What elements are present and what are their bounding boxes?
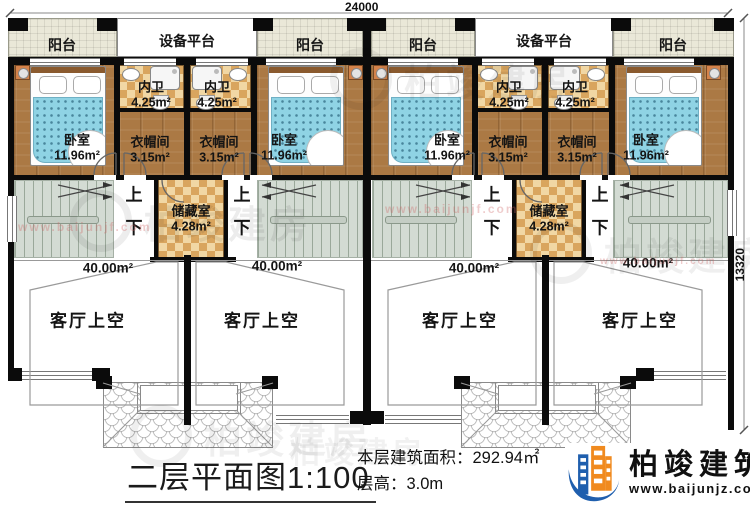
wall-post — [636, 368, 654, 381]
storage-1-label: 储藏室4.28m² — [171, 205, 211, 234]
company-logo-icon — [565, 443, 621, 503]
pillow — [73, 76, 101, 94]
wall-post — [371, 411, 384, 424]
door-opening — [608, 175, 630, 180]
pillow — [311, 76, 339, 94]
lamp — [376, 68, 387, 79]
staircase-1 — [14, 180, 114, 258]
wall — [224, 178, 228, 260]
balcony-1-label: 阳台 — [48, 35, 76, 55]
bath-window — [554, 58, 606, 66]
bottom-window — [22, 371, 92, 380]
stair-up-label: 上 — [126, 181, 143, 206]
wall-post — [253, 18, 273, 31]
headboard — [31, 67, 105, 73]
platform-1-label: 设备平台 — [159, 31, 215, 51]
wall — [154, 178, 158, 260]
pillow — [39, 76, 67, 94]
wall-post — [262, 376, 278, 389]
void-3-label: 客厅上空 — [422, 307, 498, 332]
bath-window — [124, 58, 176, 66]
floor-area-text: 本层建筑面积：292.94㎡ — [357, 446, 539, 472]
wall-post — [96, 376, 112, 389]
stair-down-label: 下 — [234, 214, 251, 239]
balcony-door-window — [266, 58, 336, 66]
void-1-label: 客厅上空 — [50, 307, 126, 332]
company-logo-text: 柏竣建筑 www.baijunjz.com — [629, 450, 750, 497]
wall-party — [184, 255, 191, 425]
wall — [184, 62, 190, 180]
bath-window — [196, 58, 248, 66]
door-opening — [452, 175, 474, 180]
void-2-label: 客厅上空 — [224, 307, 300, 332]
wall-post — [8, 18, 28, 31]
stair-handrail — [27, 216, 100, 224]
company-website: www.baijunjz.com — [629, 481, 750, 496]
dimension-height: 13320 — [733, 248, 747, 281]
pillow — [431, 76, 459, 94]
nightstand — [373, 65, 388, 80]
floor-plan-page: 阳台 设备平台 阳台 阳台 设备平台 阳台 内卫4.25m² 内卫4.25m² … — [0, 0, 750, 512]
wall — [512, 178, 516, 260]
pillow — [635, 76, 663, 94]
wall — [472, 62, 478, 180]
door-opening — [124, 175, 146, 180]
nightstand — [15, 65, 30, 80]
balcony-2-label: 阳台 — [296, 35, 324, 55]
pillow — [397, 76, 425, 94]
bedroom-4-label: 卧室11.96m² — [623, 134, 669, 163]
staircase-2 — [257, 180, 363, 258]
wall-post — [714, 18, 734, 31]
pillow — [277, 76, 305, 94]
bath-2-label: 内卫4.25m² — [197, 81, 237, 110]
bath-window — [482, 58, 534, 66]
stair-handrail — [270, 216, 347, 224]
wall-post — [350, 411, 363, 424]
headboard — [389, 67, 463, 73]
lamp — [18, 68, 29, 79]
wall — [609, 62, 615, 180]
wall-post — [620, 376, 636, 389]
void-3-area: 40.00m² — [449, 261, 499, 276]
company-name: 柏竣建筑 — [629, 450, 750, 482]
stair-down-label: 下 — [592, 214, 609, 239]
door-opening — [482, 175, 504, 180]
stair-down-label: 下 — [484, 214, 501, 239]
drawing-title: 二层平面图1:100 — [125, 452, 376, 503]
balcony-door-window — [30, 58, 100, 66]
platform-2-label: 设备平台 — [516, 31, 572, 51]
staircase-4 — [613, 180, 728, 258]
storage-2-label: 储藏室4.28m² — [529, 205, 569, 234]
blanket-fold — [306, 130, 344, 166]
floor-height-text: 层高：3.0m — [357, 472, 539, 498]
stair-down-label: 下 — [126, 214, 143, 239]
wall-post — [97, 18, 117, 31]
void-2-area: 40.00m² — [252, 259, 302, 274]
stair-handrail — [628, 216, 711, 224]
wall-post — [8, 368, 22, 381]
wall-right-exterior — [728, 57, 734, 430]
bath-1-label: 内卫4.25m² — [131, 81, 171, 110]
wall-center-party — [363, 18, 371, 425]
balcony-door-window — [388, 58, 458, 66]
bedroom-1-label: 卧室11.96m² — [54, 134, 100, 163]
nightstand — [706, 65, 721, 80]
lamp — [351, 68, 362, 79]
balcony-door-window — [624, 58, 694, 66]
stair-up-label: 上 — [234, 181, 251, 206]
wall-post — [454, 376, 470, 389]
wall — [251, 62, 257, 180]
door-opening — [250, 175, 272, 180]
door-opening — [222, 175, 244, 180]
headboard — [627, 67, 701, 73]
stair-up-label: 上 — [592, 181, 609, 206]
door-opening — [94, 175, 116, 180]
blanket-fold — [664, 130, 702, 166]
company-logo: 柏竣建筑 www.baijunjz.com — [565, 443, 750, 503]
closet-2-label: 衣帽间3.15m² — [199, 136, 239, 165]
wall-post — [611, 18, 631, 31]
wall — [542, 62, 548, 180]
pillow — [669, 76, 697, 94]
wall-post — [455, 18, 475, 31]
bottom-window — [385, 415, 461, 424]
sink — [587, 68, 605, 81]
closet-3-label: 衣帽间3.15m² — [488, 136, 528, 165]
nightstand — [348, 65, 363, 80]
lamp — [709, 68, 720, 79]
staircase-3 — [372, 180, 472, 258]
wall — [114, 62, 120, 180]
bedroom-2-label: 卧室11.96m² — [261, 134, 307, 163]
bath-3-label: 内卫4.25m² — [489, 81, 529, 110]
headboard — [269, 67, 343, 73]
wall — [582, 178, 586, 260]
sink — [229, 68, 247, 81]
stair-up-label: 上 — [484, 181, 501, 206]
side-window — [727, 190, 737, 236]
balcony-3-label: 阳台 — [409, 35, 437, 55]
bottom-window — [654, 371, 726, 380]
side-window — [7, 196, 17, 242]
stair-handrail — [385, 216, 458, 224]
bedroom-3-label: 卧室11.96m² — [424, 134, 470, 163]
wall-party — [542, 255, 549, 425]
closet-4-label: 衣帽间3.15m² — [557, 136, 597, 165]
balcony-4-label: 阳台 — [659, 35, 687, 55]
closet-1-label: 衣帽间3.15m² — [130, 136, 170, 165]
bath-4-label: 内卫4.25m² — [555, 81, 595, 110]
bottom-window — [276, 415, 349, 424]
floor-info: 本层建筑面积：292.94㎡ 层高：3.0m — [357, 446, 539, 497]
door-opening — [580, 175, 602, 180]
dimension-width: 24000 — [345, 0, 378, 14]
void-4-area: 40.00m² — [623, 256, 673, 271]
void-1-area: 40.00m² — [83, 261, 133, 276]
void-4-label: 客厅上空 — [602, 307, 678, 332]
